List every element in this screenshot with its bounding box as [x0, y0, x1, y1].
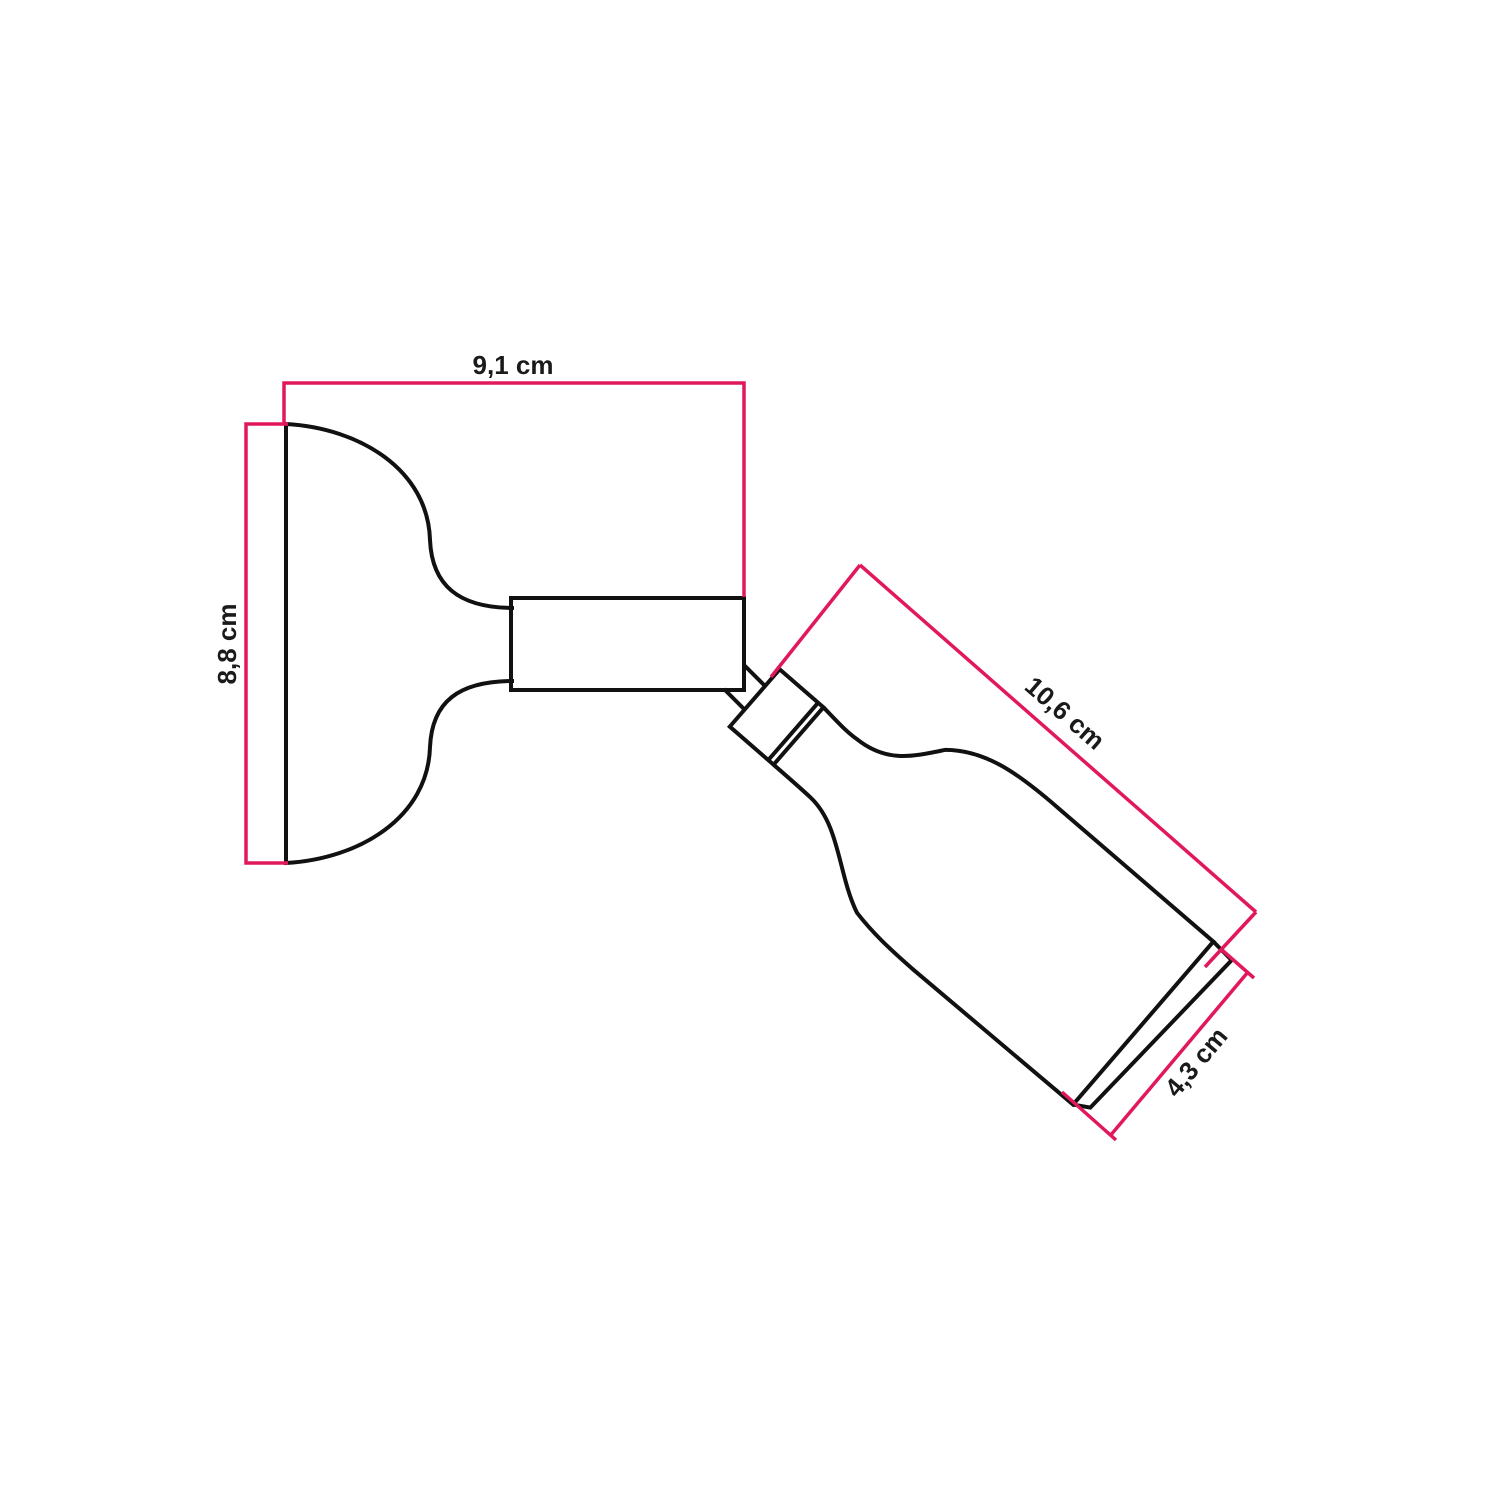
diagram-canvas: 9,1 cm 8,8 cm 10,6 cm 4,3 cm — [0, 0, 1500, 1500]
dimension-line-holder-diameter-ext-bottom — [1062, 1092, 1116, 1140]
dimension-line-base-height — [246, 424, 288, 863]
dimension-line-holder-diameter — [1110, 972, 1248, 1136]
dimension-lines — [246, 383, 1256, 1140]
dimension-line-holder-length — [860, 565, 1256, 912]
dimension-drawing-svg: 9,1 cm 8,8 cm 10,6 cm 4,3 cm — [0, 0, 1500, 1500]
product-outline — [286, 424, 1233, 1123]
swivel-seam-line — [768, 703, 818, 760]
dimension-line-base-width — [284, 383, 744, 597]
dimension-line-holder-length-ext-near — [771, 565, 860, 677]
label-base-height: 8,8 cm — [212, 604, 242, 685]
socket-body — [511, 598, 744, 690]
wall-plate-outline — [286, 424, 514, 863]
dimension-labels: 9,1 cm 8,8 cm 10,6 cm 4,3 cm — [212, 350, 1234, 1103]
swivel-stub-upper-line — [744, 665, 764, 685]
tilted-lamp-holder-group — [688, 610, 1233, 1124]
label-base-width: 9,1 cm — [473, 350, 554, 380]
